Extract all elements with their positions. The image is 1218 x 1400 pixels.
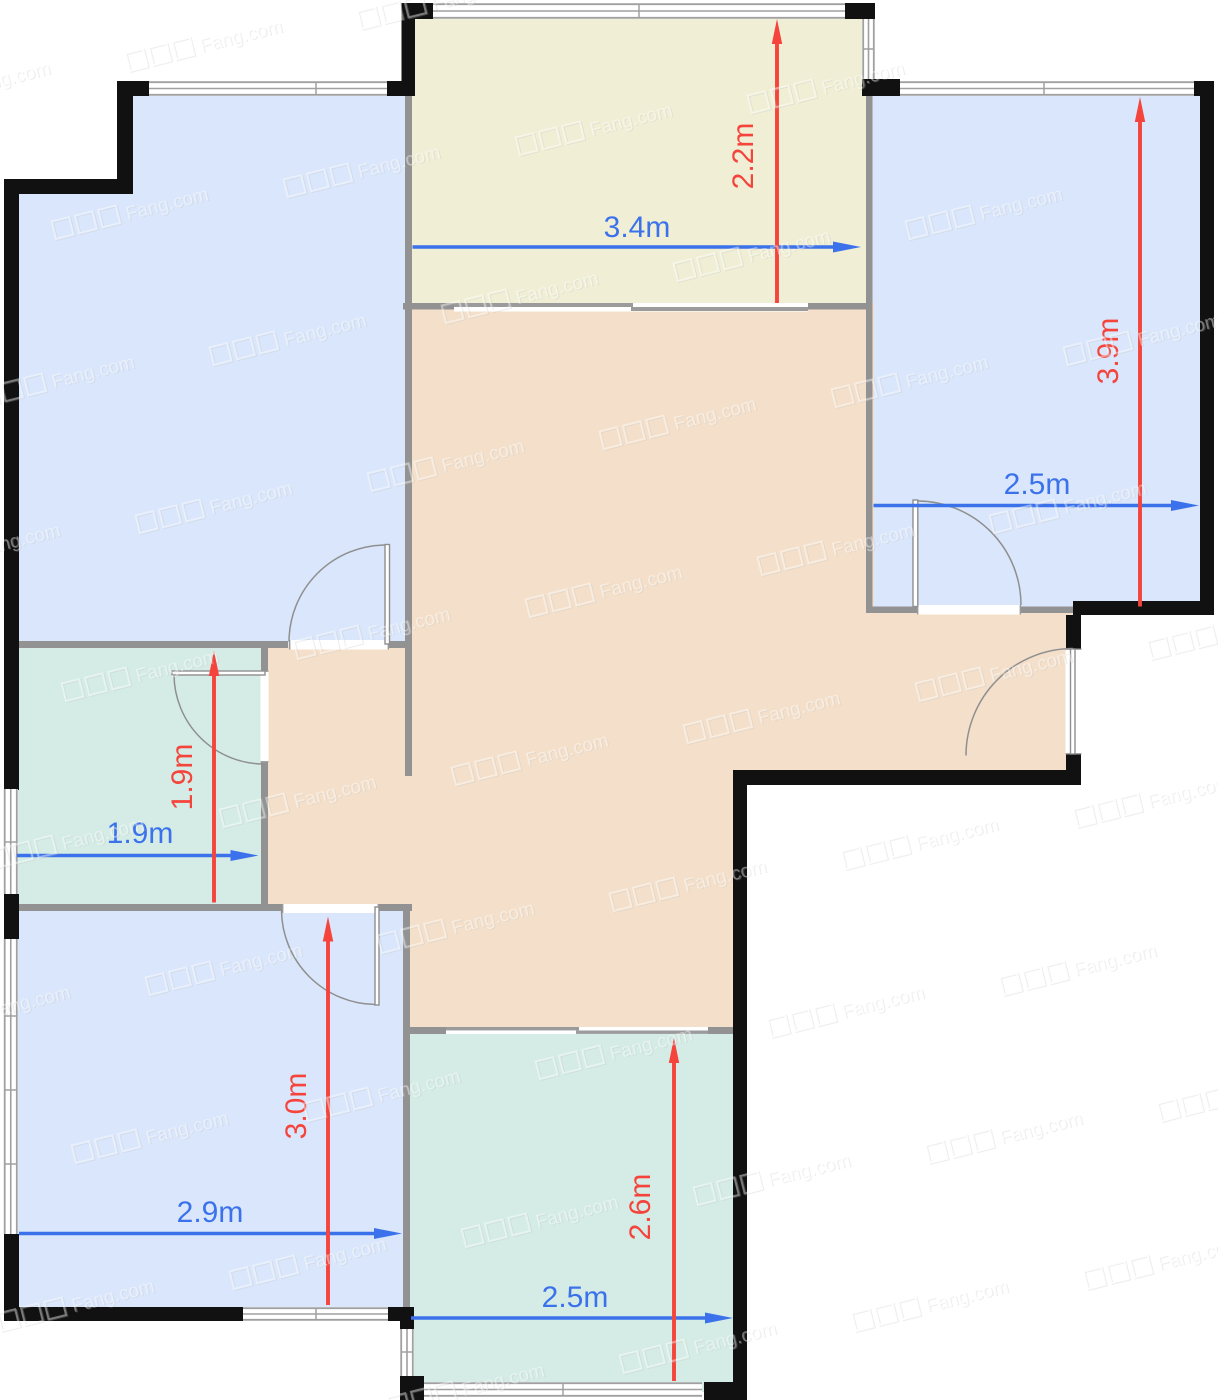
- svg-text:2.2m: 2.2m: [727, 123, 760, 190]
- svg-text:2.9m: 2.9m: [177, 1196, 244, 1229]
- svg-text:3.4m: 3.4m: [604, 211, 671, 244]
- svg-text:3.0m: 3.0m: [280, 1073, 313, 1140]
- svg-text:2.6m: 2.6m: [624, 1174, 657, 1241]
- svg-text:2.5m: 2.5m: [542, 1281, 609, 1314]
- svg-text:1.9m: 1.9m: [166, 744, 199, 811]
- svg-text:2.5m: 2.5m: [1004, 468, 1071, 501]
